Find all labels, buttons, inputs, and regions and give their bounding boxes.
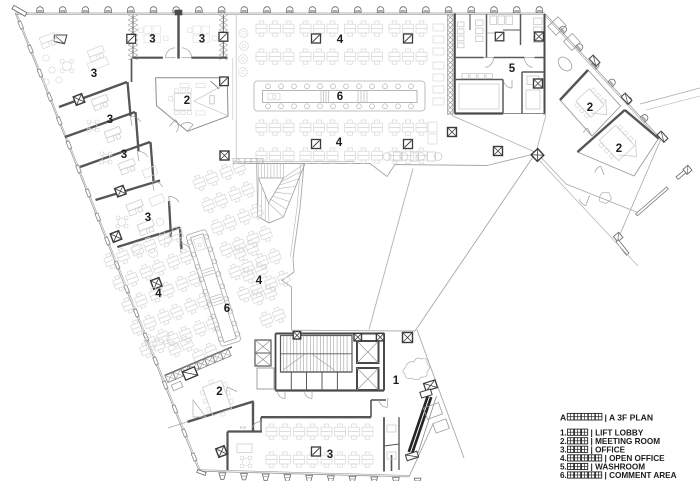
svg-text:2: 2 <box>216 386 222 398</box>
svg-text:6.: 6. <box>560 471 567 480</box>
svg-text:3: 3 <box>91 68 97 80</box>
svg-text:4: 4 <box>336 137 343 149</box>
svg-text:2: 2 <box>587 102 593 114</box>
svg-text:6: 6 <box>224 303 230 315</box>
svg-text:6: 6 <box>337 91 343 103</box>
svg-text:3: 3 <box>107 114 113 126</box>
svg-text:B-02: B-02 <box>240 426 247 430</box>
svg-text:2: 2 <box>616 143 622 155</box>
svg-text:3: 3 <box>149 34 155 46</box>
svg-text:| A 3F PLAN: | A 3F PLAN <box>605 412 654 422</box>
svg-text:| COMMENT AREA: | COMMENT AREA <box>605 471 677 480</box>
svg-text:3: 3 <box>121 149 127 161</box>
svg-text:4: 4 <box>256 275 263 287</box>
svg-text:2: 2 <box>184 95 190 107</box>
svg-text:3: 3 <box>199 34 205 46</box>
svg-text:1: 1 <box>393 375 400 387</box>
svg-text:A: A <box>560 412 566 422</box>
svg-text:5: 5 <box>509 63 516 75</box>
svg-text:4: 4 <box>337 34 344 46</box>
svg-text:3: 3 <box>145 212 151 224</box>
svg-text:3: 3 <box>327 449 333 461</box>
svg-text:4: 4 <box>155 288 162 300</box>
